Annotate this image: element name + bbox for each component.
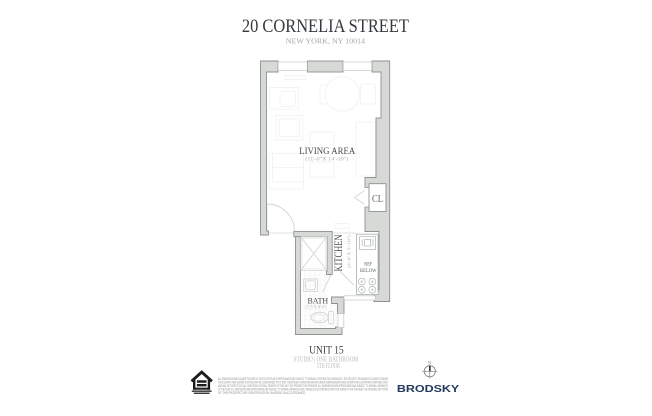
svg-text:BRODSKY: BRODSKY	[397, 384, 459, 395]
svg-text:NEW YORK, NY 10014: NEW YORK, NY 10014	[286, 37, 365, 46]
svg-text:5TH FLOOR: 5TH FLOOR	[317, 363, 340, 370]
svg-text:LIVING AREA: LIVING AREA	[299, 147, 355, 157]
svg-text:20 CORNELIA STREET: 20 CORNELIA STREET	[242, 16, 409, 37]
svg-text:(4'-6"X 5'-10"): (4'-6"X 5'-10")	[347, 235, 352, 268]
svg-text:UNIT 15: UNIT 15	[309, 345, 344, 357]
svg-text:(5'-5"X 8'-0"): (5'-5"X 8'-0")	[306, 304, 328, 309]
svg-text:N: N	[428, 360, 431, 365]
svg-text:OF THE PROSPECTIVE IDENTIFICAT: OF THE PROSPECTIVE IDENTIFICATION IN ARE…	[218, 391, 306, 395]
svg-text:REF: REF	[364, 261, 372, 267]
svg-text:BELOW: BELOW	[360, 268, 377, 274]
svg-text:(11'-0"X 14'-10"): (11'-0"X 14'-10")	[305, 158, 348, 163]
svg-text:CL: CL	[372, 194, 383, 205]
svg-text:KITCHEN: KITCHEN	[333, 234, 345, 272]
